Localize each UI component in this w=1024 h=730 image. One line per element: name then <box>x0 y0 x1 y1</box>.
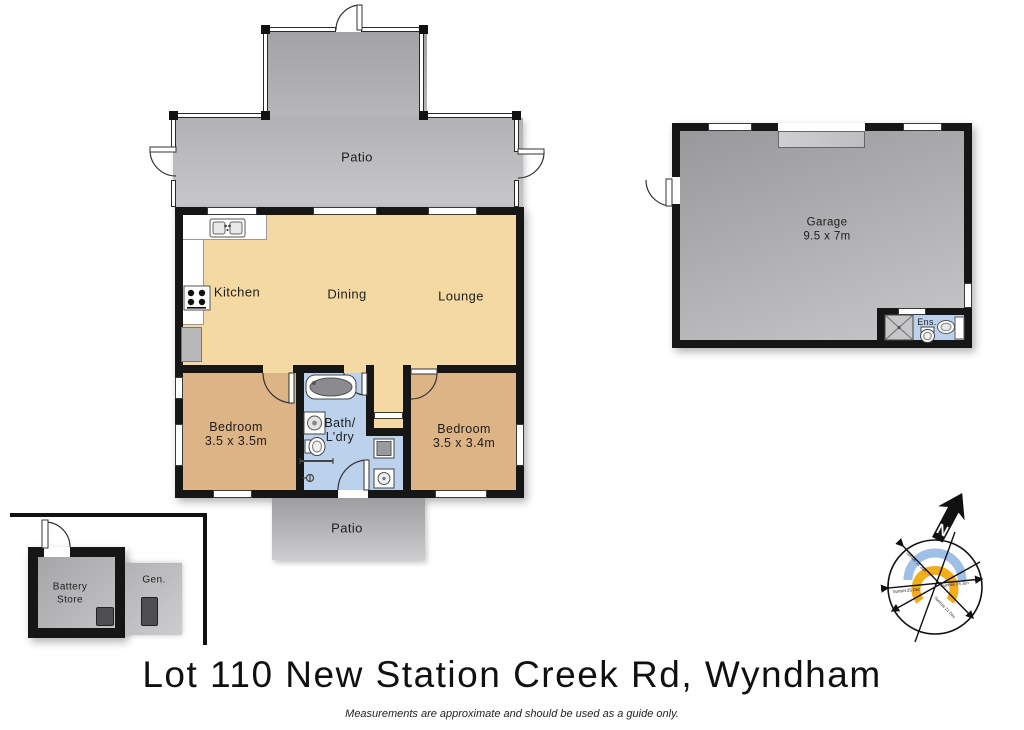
patio-top-label: Patio <box>341 150 373 165</box>
site-boundary-line <box>10 513 207 517</box>
garage-dims: 9.5 x 7m <box>803 230 850 244</box>
compass-label-sunrise-jun: Sunrise 25 Jun <box>941 580 970 588</box>
ensuite-wall-left <box>877 308 885 340</box>
patio-bottom-label: Patio <box>331 521 363 536</box>
bedroom1-window <box>213 490 252 498</box>
interior-wall <box>437 365 516 373</box>
compass: N Sunset 25 Dec Sunrise 25 Jun Sunset 21… <box>888 486 982 642</box>
bath-laundry-floor-ext <box>366 436 403 490</box>
kitchen-window <box>207 207 257 215</box>
generator-unit <box>141 597 158 626</box>
patio-post <box>419 25 428 34</box>
patio-door-threshold <box>336 27 361 32</box>
kitchen-counter-left <box>183 240 204 325</box>
north-arrow: N <box>924 486 975 547</box>
ensuite-door <box>898 308 926 315</box>
site-boundary-line <box>203 513 207 645</box>
bedroom2-label: Bedroom 3.5 x 3.4m <box>433 422 495 450</box>
bedroom1-side-window <box>175 377 183 399</box>
disclaimer-text: Measurements are approximate and should … <box>0 708 1024 720</box>
patio-rail <box>171 180 176 207</box>
bath-line2: L’dry <box>324 430 355 444</box>
garage-window <box>708 123 752 131</box>
garage-wall-bottom <box>672 340 972 348</box>
battery-store-label: Battery Store <box>53 582 87 607</box>
patio-rail <box>419 27 424 118</box>
kitchen-counter-top <box>183 215 267 240</box>
patio-top-upper-deck <box>267 30 427 118</box>
garage-wall-left <box>672 123 680 348</box>
plan-title: Lot 110 New Station Creek Rd, Wyndham <box>0 654 1024 696</box>
linen-wall <box>374 428 403 436</box>
patio-rail <box>263 27 336 32</box>
interior-wall <box>296 365 304 490</box>
bedroom2-side-window <box>516 424 524 466</box>
patio-rail <box>171 113 263 118</box>
compass-label-sunset-jun: Sunset 21 Jun <box>905 550 928 573</box>
bedroom1-dims: 3.5 x 3.5m <box>205 434 267 448</box>
sun-ring-orange <box>916 570 954 601</box>
garage-entry-threshold <box>672 177 680 204</box>
dining-sliding-door <box>313 207 377 215</box>
lounge-window <box>428 207 477 215</box>
patio-rail <box>424 113 519 118</box>
floorplan-canvas: N Sunset 25 Dec Sunrise 25 Jun Sunset 21… <box>0 0 1024 730</box>
bedroom2-window <box>435 490 487 498</box>
sun-ring-blue <box>908 553 962 580</box>
compass-lines <box>888 532 982 642</box>
bath-door-threshold <box>338 490 368 498</box>
garage-window <box>903 123 942 131</box>
bedroom2-name: Bedroom <box>433 422 495 436</box>
patio-post <box>261 25 270 34</box>
interior-wall <box>366 373 374 436</box>
fridge-space <box>181 327 202 362</box>
bedroom1-side-window <box>175 424 183 466</box>
generator-label: Gen. <box>142 575 165 586</box>
interior-wall <box>366 365 374 373</box>
bedroom1-name: Bedroom <box>205 420 267 434</box>
bedroom1-label: Bedroom 3.5 x 3.5m <box>205 420 267 448</box>
patio-rail <box>263 27 268 118</box>
interior-wall <box>183 365 263 373</box>
linen-sliding-door <box>374 412 403 419</box>
garage-door-recess <box>778 131 865 148</box>
garage-label: Garage 9.5 x 7m <box>803 217 850 244</box>
bath-line1: Bath/ <box>324 416 355 430</box>
lounge-label: Lounge <box>438 289 484 304</box>
garage-name: Garage <box>803 217 850 231</box>
patio-rail <box>361 27 424 32</box>
patio-post <box>169 111 178 120</box>
ensuite-label: Ens. <box>917 317 937 327</box>
hallway-floor <box>374 365 403 412</box>
compass-circle <box>888 540 982 634</box>
bath-label: Bath/ L’dry <box>324 416 355 444</box>
compass-label-sunrise-dec: Sunrise 21 Dec <box>933 595 956 619</box>
kitchen-label: Kitchen <box>214 285 260 300</box>
garage-side-window <box>964 283 972 308</box>
dining-label: Dining <box>327 287 366 302</box>
battery-unit <box>96 607 114 626</box>
compass-label-sunset-dec: Sunset 25 Dec <box>893 587 921 594</box>
patio-post <box>512 111 521 120</box>
patio-post <box>419 111 428 120</box>
interior-wall <box>403 365 411 490</box>
patio-post <box>261 111 270 120</box>
battery-store-door-threshold <box>44 547 70 557</box>
bedroom2-dims: 3.5 x 3.4m <box>433 436 495 450</box>
north-letter: N <box>933 521 951 541</box>
battery-line1: Battery <box>53 582 87 595</box>
linen-closet-floor <box>374 419 403 428</box>
patio-rail <box>514 180 519 207</box>
garage-roller-door <box>778 123 865 131</box>
battery-line2: Store <box>53 594 87 607</box>
